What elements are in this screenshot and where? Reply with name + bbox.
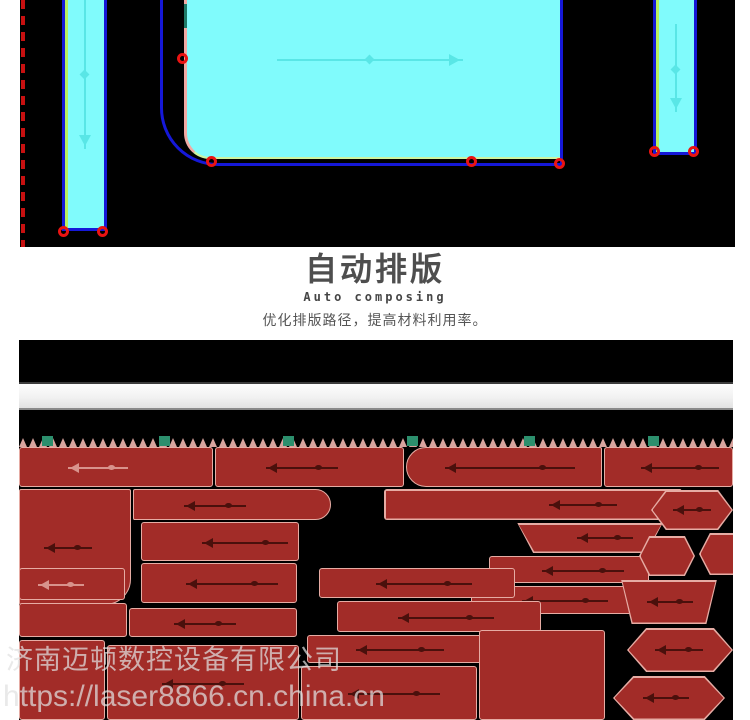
serration-tooth bbox=[109, 438, 117, 447]
serration-tooth bbox=[679, 438, 687, 447]
cut-direction-arrow-left bbox=[356, 649, 444, 651]
serration-tooth bbox=[329, 438, 337, 447]
nested-part bbox=[215, 447, 404, 487]
serration-tooth bbox=[89, 438, 97, 447]
cut-edge-highlight bbox=[65, 0, 68, 228]
pierce-point-marker bbox=[97, 226, 108, 237]
nested-part bbox=[613, 676, 725, 720]
cut-direction-arrow-left bbox=[577, 537, 633, 539]
nested-part bbox=[129, 608, 297, 637]
serration-tooth bbox=[729, 438, 733, 447]
serration-tooth bbox=[249, 438, 257, 447]
serration-tooth bbox=[229, 438, 237, 447]
serration-tooth bbox=[469, 438, 477, 447]
cut-direction-arrow-left bbox=[184, 505, 246, 507]
cut-direction-arrow-left bbox=[68, 467, 128, 469]
serration-tooth bbox=[299, 438, 307, 447]
cut-direction-arrow-left bbox=[647, 601, 693, 603]
sheet-boundary-dashed-line bbox=[21, 0, 25, 247]
nested-part bbox=[384, 489, 696, 520]
nested-part-strip-left bbox=[62, 0, 107, 231]
cut-direction-arrow-left bbox=[162, 683, 244, 685]
serration-tooth bbox=[559, 438, 567, 447]
cut-direction-arrow-left bbox=[445, 467, 575, 469]
serration-tooth bbox=[499, 438, 507, 447]
cut-direction-arrow-left bbox=[641, 467, 719, 469]
serration-tooth bbox=[339, 438, 347, 447]
section-subtitle: Auto composing bbox=[0, 291, 750, 303]
serration-tooth bbox=[399, 438, 407, 447]
edge-mark bbox=[184, 4, 187, 28]
serration-tooth bbox=[709, 438, 717, 447]
cut-edge-highlight bbox=[656, 0, 659, 152]
nested-part bbox=[651, 490, 733, 530]
nested-part-strip-right bbox=[653, 0, 697, 155]
cut-direction-arrow-left bbox=[174, 623, 236, 625]
serration-tooth bbox=[259, 438, 267, 447]
serration-tooth bbox=[669, 438, 677, 447]
nested-part bbox=[319, 568, 515, 598]
serration-tooth bbox=[479, 438, 487, 447]
serration-tooth bbox=[209, 438, 217, 447]
serration-tooth bbox=[589, 438, 597, 447]
serration-tooth bbox=[269, 438, 277, 447]
serration-tooth bbox=[439, 438, 447, 447]
serration-tooth bbox=[389, 438, 397, 447]
nested-part bbox=[627, 628, 733, 672]
clamp-marker bbox=[524, 436, 535, 446]
serration-tooth bbox=[689, 438, 697, 447]
serration-tooth bbox=[609, 438, 617, 447]
serration-tooth bbox=[79, 438, 87, 447]
serration-tooth bbox=[29, 438, 37, 447]
serration-tooth bbox=[449, 438, 457, 447]
cut-direction-arrow-left bbox=[202, 542, 288, 544]
nested-part bbox=[141, 522, 299, 561]
serration-tooth bbox=[459, 438, 467, 447]
cut-direction-arrow-down bbox=[84, 0, 86, 149]
nested-part-fill bbox=[641, 538, 694, 575]
auto-nesting-preview-cyan bbox=[20, 0, 735, 247]
serration-tooth bbox=[69, 438, 77, 447]
cut-direction-arrow-left bbox=[655, 649, 703, 651]
clamp-marker bbox=[42, 436, 53, 446]
cut-direction-arrow-left bbox=[348, 693, 440, 695]
cut-direction-arrow-left bbox=[549, 504, 617, 506]
serration-edge bbox=[19, 437, 733, 447]
nested-part bbox=[301, 666, 477, 720]
nested-part bbox=[19, 447, 213, 487]
nested-part bbox=[19, 603, 127, 637]
section-title: 自动排版 bbox=[0, 253, 750, 285]
serration-tooth bbox=[629, 438, 637, 447]
cut-direction-arrow-down bbox=[675, 24, 677, 112]
serration-tooth bbox=[549, 438, 557, 447]
cut-direction-arrow-left bbox=[186, 583, 278, 585]
nested-part-fill bbox=[386, 491, 695, 519]
nested-part-large-rect bbox=[184, 0, 560, 159]
serration-tooth bbox=[99, 438, 107, 447]
section-description: 优化排版路径，提高材料利用率。 bbox=[0, 313, 750, 327]
nested-part bbox=[699, 533, 733, 575]
serration-tooth bbox=[309, 438, 317, 447]
serration-tooth bbox=[429, 438, 437, 447]
serration-tooth bbox=[569, 438, 577, 447]
pierce-point-marker bbox=[206, 156, 217, 167]
serration-tooth bbox=[149, 438, 157, 447]
cut-direction-arrow-left bbox=[38, 584, 84, 586]
serration-tooth bbox=[139, 438, 147, 447]
cut-direction-arrow-left bbox=[376, 583, 472, 585]
serration-tooth bbox=[319, 438, 327, 447]
serration-tooth bbox=[579, 438, 587, 447]
serration-tooth bbox=[719, 438, 727, 447]
feature-section: 自动排版 Auto composing 优化排版路径，提高材料利用率。 bbox=[0, 247, 750, 340]
serration-tooth bbox=[189, 438, 197, 447]
cut-direction-arrow-left bbox=[673, 509, 711, 511]
serration-tooth bbox=[59, 438, 67, 447]
serration-tooth bbox=[129, 438, 137, 447]
nested-part bbox=[141, 563, 297, 603]
serration-tooth bbox=[179, 438, 187, 447]
nested-part bbox=[617, 580, 721, 624]
nested-part bbox=[19, 640, 105, 720]
nested-part bbox=[604, 447, 733, 487]
serration-tooth bbox=[539, 438, 547, 447]
serration-tooth bbox=[419, 438, 427, 447]
nested-part bbox=[307, 635, 499, 663]
serration-tooth bbox=[19, 438, 27, 447]
serration-tooth bbox=[369, 438, 377, 447]
nested-part bbox=[107, 645, 299, 720]
serration-tooth bbox=[119, 438, 127, 447]
cut-direction-arrow-right bbox=[277, 59, 463, 61]
nested-part bbox=[479, 630, 605, 720]
clamp-marker bbox=[407, 436, 418, 446]
nested-part bbox=[639, 536, 695, 576]
pierce-point-marker bbox=[554, 158, 565, 169]
cut-direction-arrow-left bbox=[398, 617, 494, 619]
clamp-marker bbox=[648, 436, 659, 446]
serration-tooth bbox=[349, 438, 357, 447]
clamp-marker bbox=[283, 436, 294, 446]
nested-part bbox=[406, 447, 602, 487]
serration-tooth bbox=[219, 438, 227, 447]
serration-tooth bbox=[489, 438, 497, 447]
toolbar-bar bbox=[19, 384, 733, 410]
pierce-point-marker bbox=[649, 146, 660, 157]
cut-direction-arrow-left bbox=[643, 697, 689, 699]
cut-direction-arrow-left bbox=[542, 570, 624, 572]
cut-direction-arrow-left bbox=[266, 467, 338, 469]
serration-tooth bbox=[659, 438, 667, 447]
pierce-point-marker bbox=[58, 226, 69, 237]
nested-part-fill bbox=[701, 535, 734, 574]
pierce-point-marker bbox=[177, 53, 188, 64]
serration-tooth bbox=[699, 438, 707, 447]
pierce-point-marker bbox=[466, 156, 477, 167]
clamp-marker bbox=[159, 436, 170, 446]
serration-tooth bbox=[599, 438, 607, 447]
nested-part bbox=[19, 568, 125, 600]
serration-tooth bbox=[239, 438, 247, 447]
nested-part bbox=[133, 489, 331, 520]
serration-tooth bbox=[509, 438, 517, 447]
serration-tooth bbox=[169, 438, 177, 447]
cut-direction-arrow-left bbox=[44, 547, 92, 549]
serration-tooth bbox=[379, 438, 387, 447]
auto-nesting-preview-red bbox=[19, 340, 733, 720]
serration-tooth bbox=[639, 438, 647, 447]
pierce-point-marker bbox=[688, 146, 699, 157]
serration-tooth bbox=[619, 438, 627, 447]
nested-part bbox=[337, 601, 541, 632]
serration-tooth bbox=[359, 438, 367, 447]
serration-tooth bbox=[199, 438, 207, 447]
